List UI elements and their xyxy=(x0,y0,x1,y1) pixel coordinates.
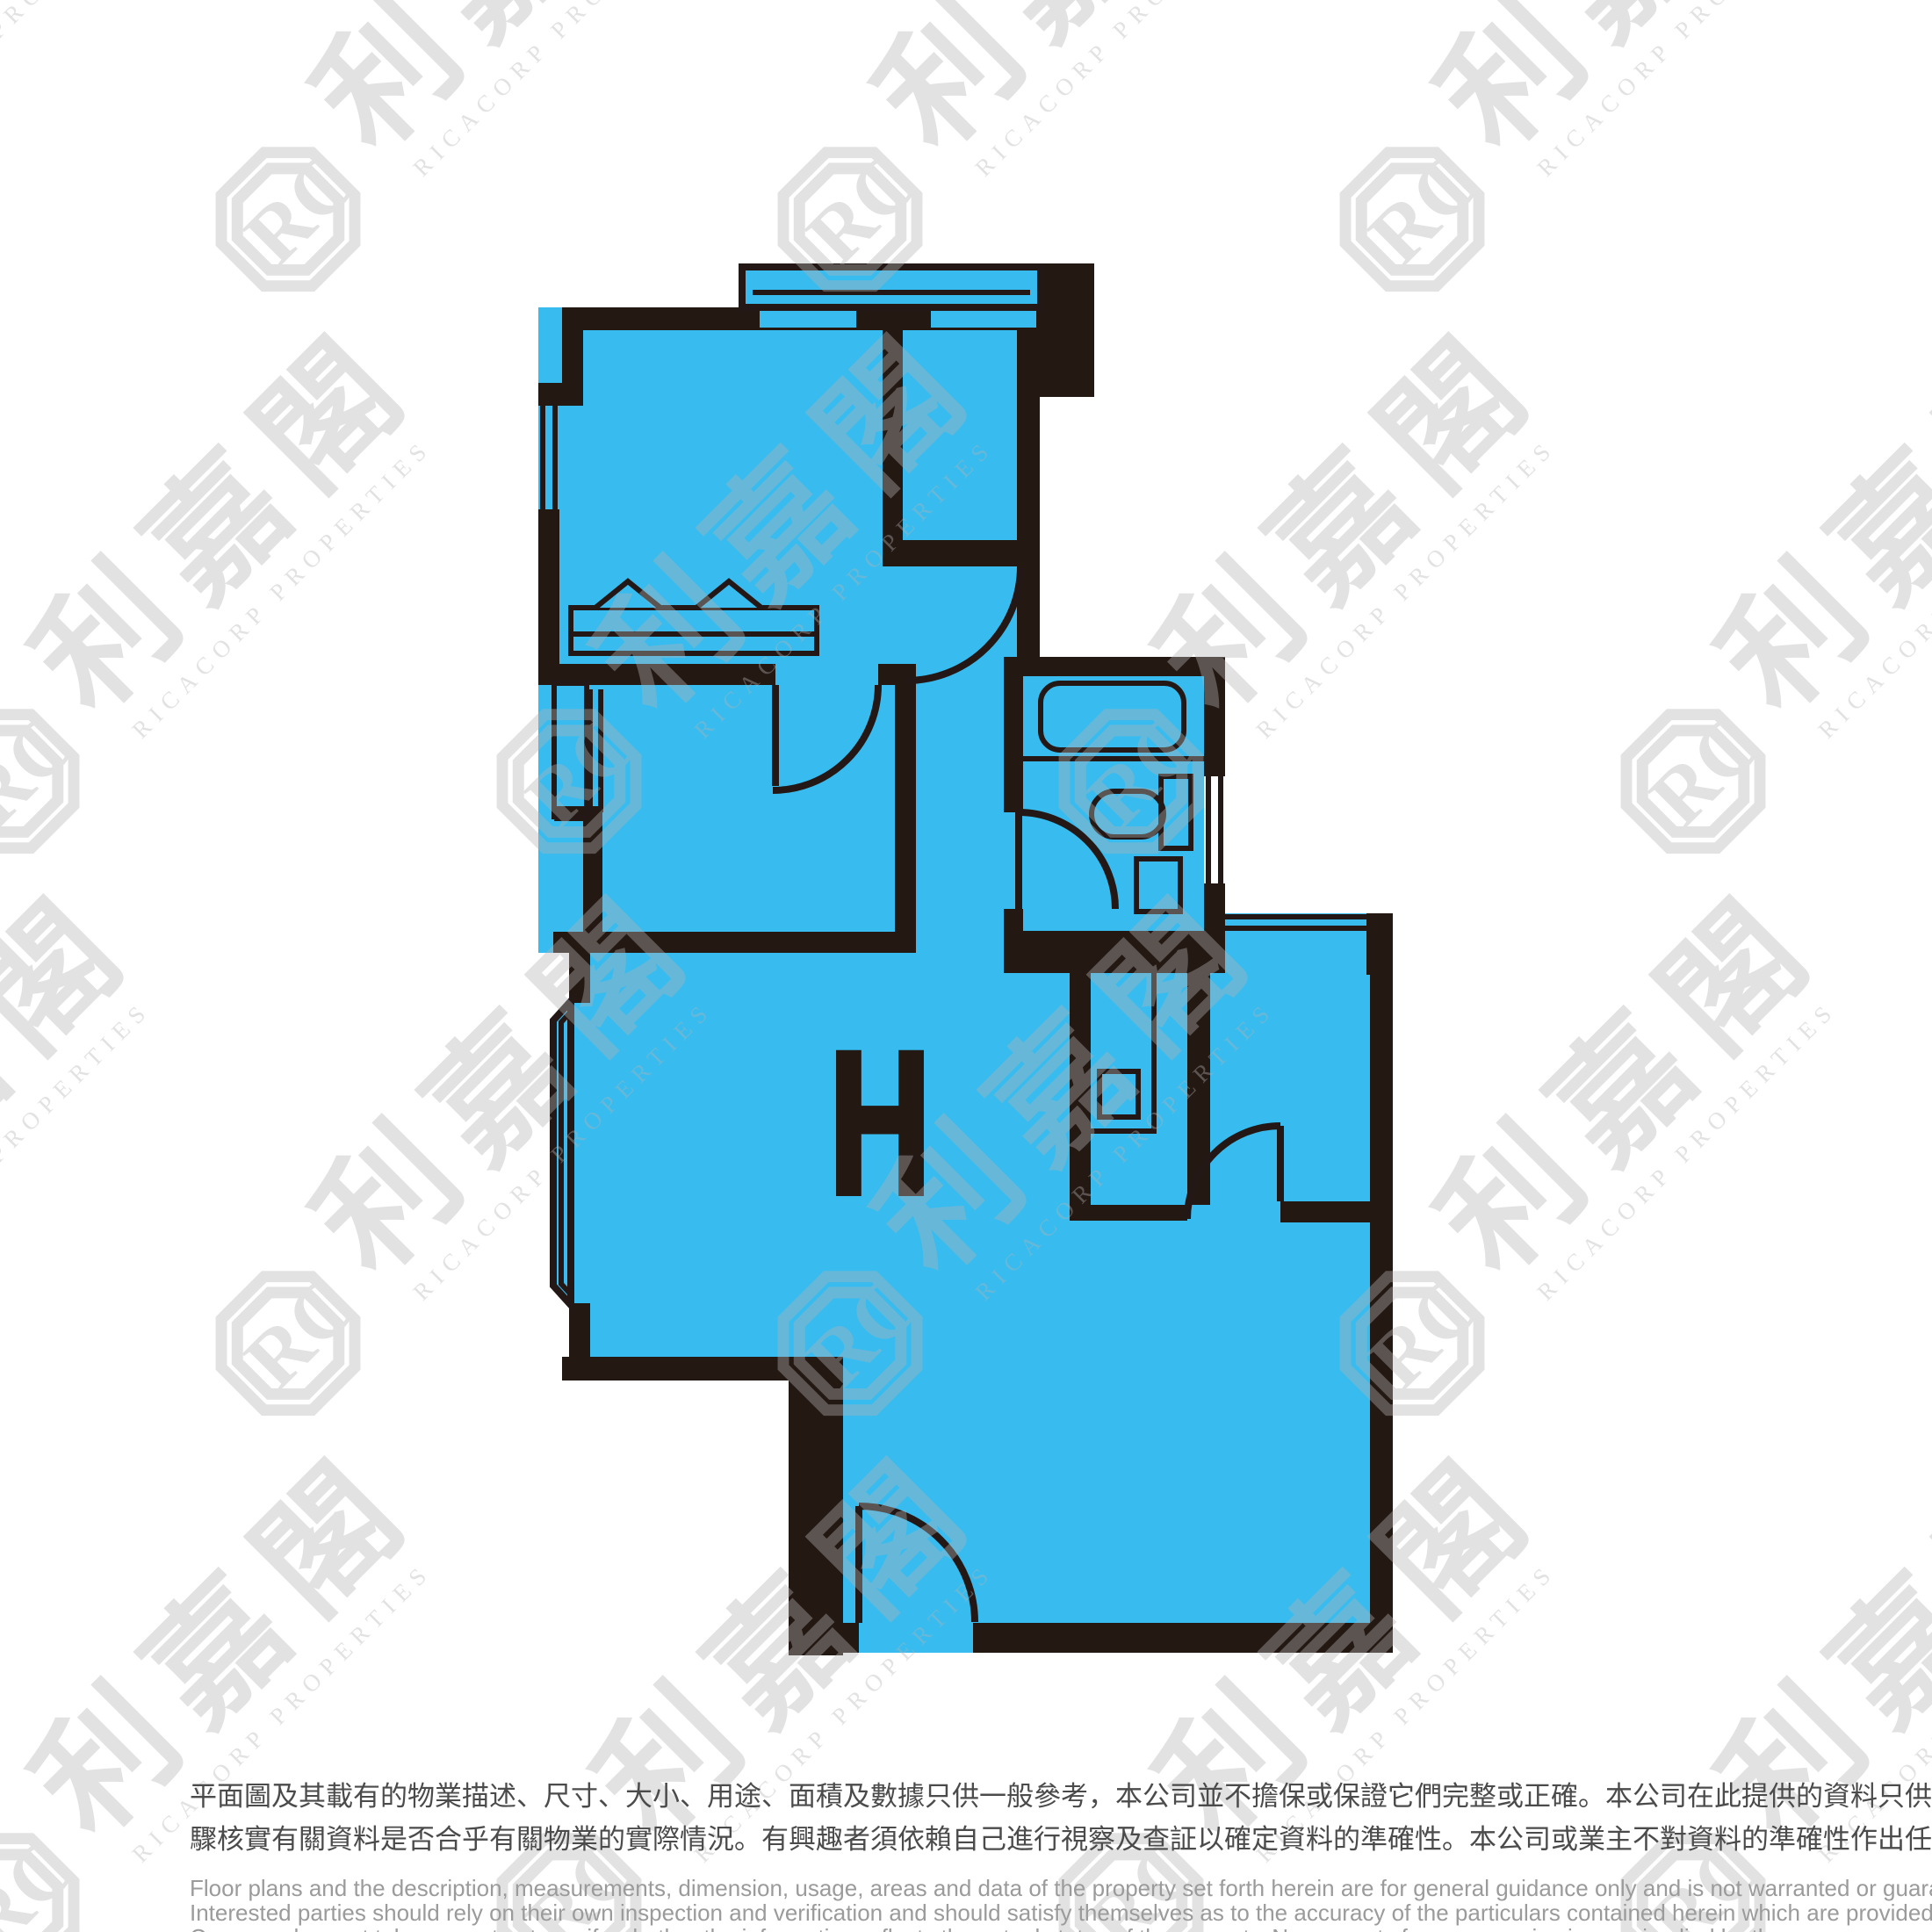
disclaimer-en-line: Interested parties should rely on their … xyxy=(190,1900,1924,1925)
window-slot-left xyxy=(760,310,856,328)
entrance-gap xyxy=(859,1623,973,1653)
disclaimer-en-block: Floor plans and the description, measure… xyxy=(190,1876,1924,1932)
disclaimer-zh-line: 平面圖及其載有的物業描述、尺寸、大小、用途、面積及數據只供一般參考，本公司並不擔… xyxy=(190,1776,1924,1819)
floor-areas xyxy=(538,267,1393,1653)
disclaimer-en-line: Company has not taken any step to verify… xyxy=(190,1925,1924,1932)
living-dining-floor xyxy=(569,953,1393,1653)
disclaimer: 平面圖及其載有的物業描述、尺寸、大小、用途、面積及數據只供一般參考，本公司並不擔… xyxy=(190,1776,1924,1932)
hallway-floor xyxy=(903,685,1004,975)
corner-column xyxy=(1040,263,1094,397)
page: H RC 利嘉閣 RICACORP PROPERTIES 平面圖及其載有的物業描… xyxy=(0,0,1932,1932)
unit-label: H xyxy=(824,1010,936,1244)
floor-plan-svg: H xyxy=(0,0,1932,1932)
disclaimer-en-line: Floor plans and the description, measure… xyxy=(190,1876,1924,1900)
bedrooms-top-floor xyxy=(538,307,1040,685)
window-slot-right xyxy=(931,310,1036,328)
disclaimer-zh-line: 驟核實有關資料是否合乎有關物業的實際情況。有興趣者須依賴自己進行視察及查証以確定… xyxy=(190,1819,1924,1862)
bay-window-top-floor xyxy=(742,267,1041,307)
bay-window-bedroom-floor xyxy=(554,683,587,817)
